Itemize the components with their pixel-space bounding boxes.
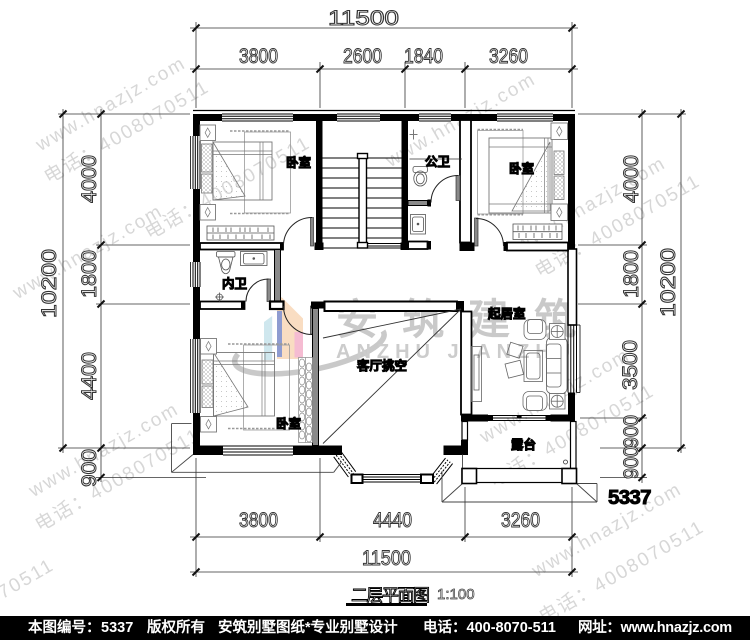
- svg-text:900: 900: [620, 415, 643, 448]
- svg-text:起居室: 起居室: [487, 306, 526, 321]
- svg-text:公卫: 公卫: [425, 155, 451, 169]
- svg-text:5337: 5337: [608, 486, 651, 509]
- svg-text:900: 900: [620, 446, 643, 479]
- svg-text:内卫: 内卫: [222, 276, 248, 291]
- svg-text:11500: 11500: [328, 7, 399, 30]
- svg-text:卧室: 卧室: [286, 155, 312, 170]
- svg-text:3260: 3260: [489, 45, 528, 68]
- svg-text:10200: 10200: [657, 248, 680, 317]
- svg-text:3800: 3800: [239, 509, 278, 532]
- svg-text:1800: 1800: [620, 250, 643, 298]
- svg-text:3260: 3260: [501, 509, 540, 532]
- svg-text:11500: 11500: [362, 547, 411, 570]
- svg-text:卧室: 卧室: [276, 416, 302, 431]
- svg-text:4400: 4400: [78, 352, 101, 400]
- svg-text:10200: 10200: [38, 249, 61, 318]
- svg-text:3800: 3800: [239, 45, 278, 68]
- svg-text:客厅挑空: 客厅挑空: [356, 358, 407, 373]
- svg-text:2600: 2600: [343, 45, 382, 68]
- svg-text:卧室: 卧室: [509, 161, 535, 176]
- svg-text:1840: 1840: [404, 45, 443, 68]
- svg-text:露台: 露台: [511, 437, 536, 452]
- svg-text:4000: 4000: [620, 155, 643, 203]
- svg-text:900: 900: [78, 449, 101, 487]
- svg-text:4000: 4000: [78, 155, 101, 203]
- svg-text:3500: 3500: [619, 340, 642, 390]
- svg-text:1800: 1800: [78, 250, 101, 298]
- svg-text:4440: 4440: [373, 509, 412, 532]
